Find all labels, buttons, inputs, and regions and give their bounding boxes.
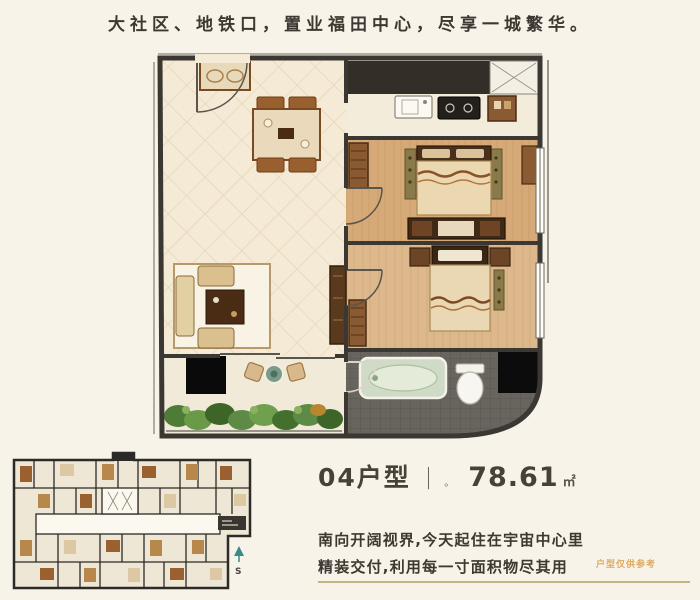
- foot-wardrobe-1: [408, 218, 505, 239]
- unit-name: 04户型: [318, 458, 411, 494]
- kitchen-sink: [395, 96, 432, 118]
- divider-line: [318, 581, 690, 583]
- unit-dot: 。: [444, 474, 454, 489]
- utility-shaft: [498, 351, 539, 393]
- toilet: [456, 364, 484, 404]
- wardrobe-2: [349, 300, 366, 346]
- north-arrow: S: [234, 546, 244, 577]
- wardrobe-1: [349, 143, 368, 188]
- headline-text: 大社区、地铁口，置业福田中心，尽享一城繁华。: [0, 10, 700, 35]
- sofa-set: [174, 264, 270, 348]
- ac-unit: [186, 356, 226, 394]
- description-line-2: 精装交付,利用每一寸面积物尽其用: [318, 554, 584, 581]
- bed-1: [405, 146, 502, 215]
- compass-label: S: [235, 567, 241, 577]
- shoe-cabinet: [200, 62, 250, 90]
- window-right-bedroom2: [536, 263, 544, 338]
- tv-cabinet: [330, 266, 346, 344]
- description-block: 南向开阔视界,今天起住在宇宙中心里 精装交付,利用每一寸面积物尽其用: [318, 527, 584, 581]
- unit-divider: |: [425, 465, 432, 490]
- ad-page: 大社区、地铁口，置业福田中心，尽享一城繁华。: [0, 0, 700, 600]
- entry-opening: [195, 54, 250, 63]
- kitchen-counter: [348, 61, 538, 94]
- keyplan-label-box: [218, 516, 246, 530]
- balcony-table-set: [244, 362, 306, 383]
- unit-area-unit: ㎡: [563, 471, 576, 490]
- dresser-1: [522, 146, 537, 184]
- floor-plan: [150, 48, 550, 448]
- fridge: [488, 96, 516, 121]
- building-key-plan: S: [10, 450, 255, 598]
- unit-area-value: 78.61: [468, 462, 558, 493]
- window-right-bedroom1: [536, 148, 544, 233]
- unit-info: 04户型 | 。 78.61 ㎡: [318, 458, 576, 494]
- dining-set: [253, 97, 320, 172]
- stove: [438, 97, 480, 119]
- description-line-1: 南向开阔视界,今天起住在宇宙中心里: [318, 527, 584, 554]
- disclaimer-text: 户型仅供参考: [596, 557, 656, 570]
- bathtub: [360, 358, 446, 398]
